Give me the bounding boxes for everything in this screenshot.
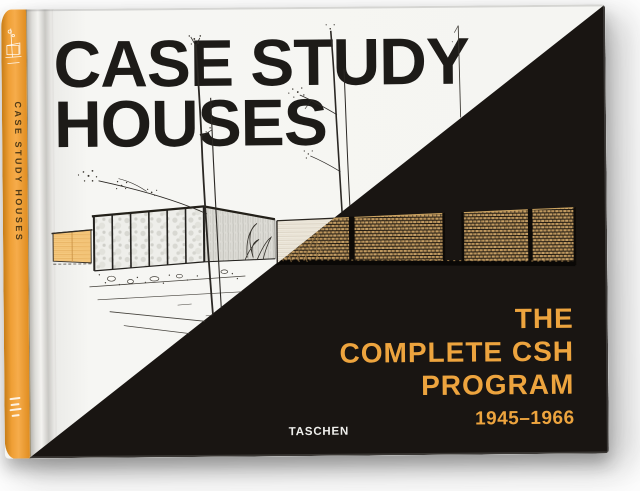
subtitle-block: THE COMPLETE CSH PROGRAM 1945–1966 xyxy=(339,302,575,432)
spine-title: CASE STUDY HOUSES xyxy=(11,101,25,369)
publisher-logo: TASCHEN xyxy=(289,426,349,439)
years-label: 1945–1966 xyxy=(340,408,575,432)
subtitle-line-3: PROGRAM xyxy=(340,368,575,403)
spine: CASE STUDY HOUSES xyxy=(1,9,30,458)
subtitle-line-1: THE xyxy=(339,302,574,337)
subtitle-line-2: COMPLETE CSH xyxy=(339,335,574,370)
spine-artwork xyxy=(4,23,24,81)
title-line-2: HOUSES xyxy=(54,91,470,155)
book-product-photo: CASE STUDY HOUSES CASE STUDY HOUSES xyxy=(0,0,640,491)
spine-footer-text-marks xyxy=(9,393,23,419)
book: CASE STUDY HOUSES CASE STUDY HOUSES xyxy=(1,4,609,458)
cover-title: CASE STUDY HOUSES xyxy=(53,31,469,155)
